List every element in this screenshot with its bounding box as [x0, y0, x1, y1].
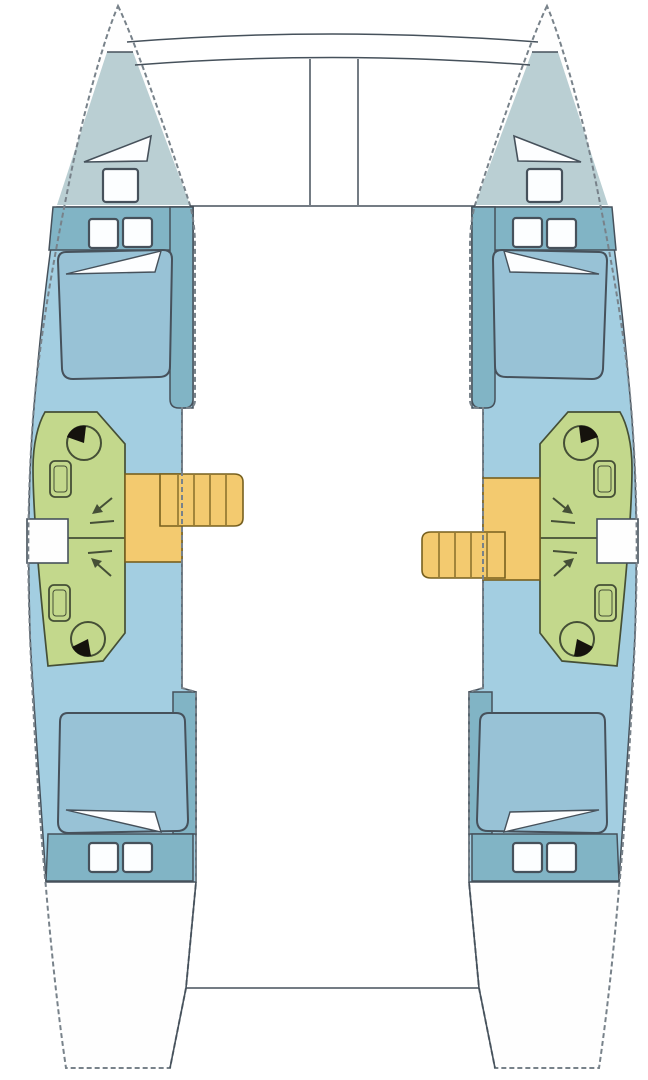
companionway-stairs — [422, 532, 505, 578]
deck-hatch-icon — [547, 219, 576, 248]
companionway-stairs — [160, 474, 243, 526]
deck-hatch-icon — [89, 843, 118, 872]
deck-hatch-icon — [547, 843, 576, 872]
catamaran-floorplan-svg — [0, 0, 648, 1080]
forward-crossbeam — [127, 34, 538, 42]
deck-hatch-icon — [123, 843, 152, 872]
foredeck-trampoline — [127, 34, 538, 206]
deck-hatch-icon — [527, 169, 562, 202]
aft-coachroof-band — [46, 834, 193, 881]
inner-side-deck-strip — [472, 207, 495, 408]
deck-hatch-icon — [513, 843, 542, 872]
hull-window — [597, 519, 638, 563]
floorplan-canvas — [0, 0, 648, 1080]
forward-crossbeam — [135, 58, 530, 66]
port-hull — [27, 6, 243, 1068]
starboard-hull — [422, 6, 638, 1068]
hull-window — [27, 519, 68, 563]
deck-hatch-icon — [513, 218, 542, 247]
deck-hatch-icon — [89, 219, 118, 248]
deck-hatch-icon — [123, 218, 152, 247]
inner-side-deck-strip — [170, 207, 193, 408]
deck-hatch-icon — [103, 169, 138, 202]
aft-coachroof-band — [472, 834, 619, 881]
